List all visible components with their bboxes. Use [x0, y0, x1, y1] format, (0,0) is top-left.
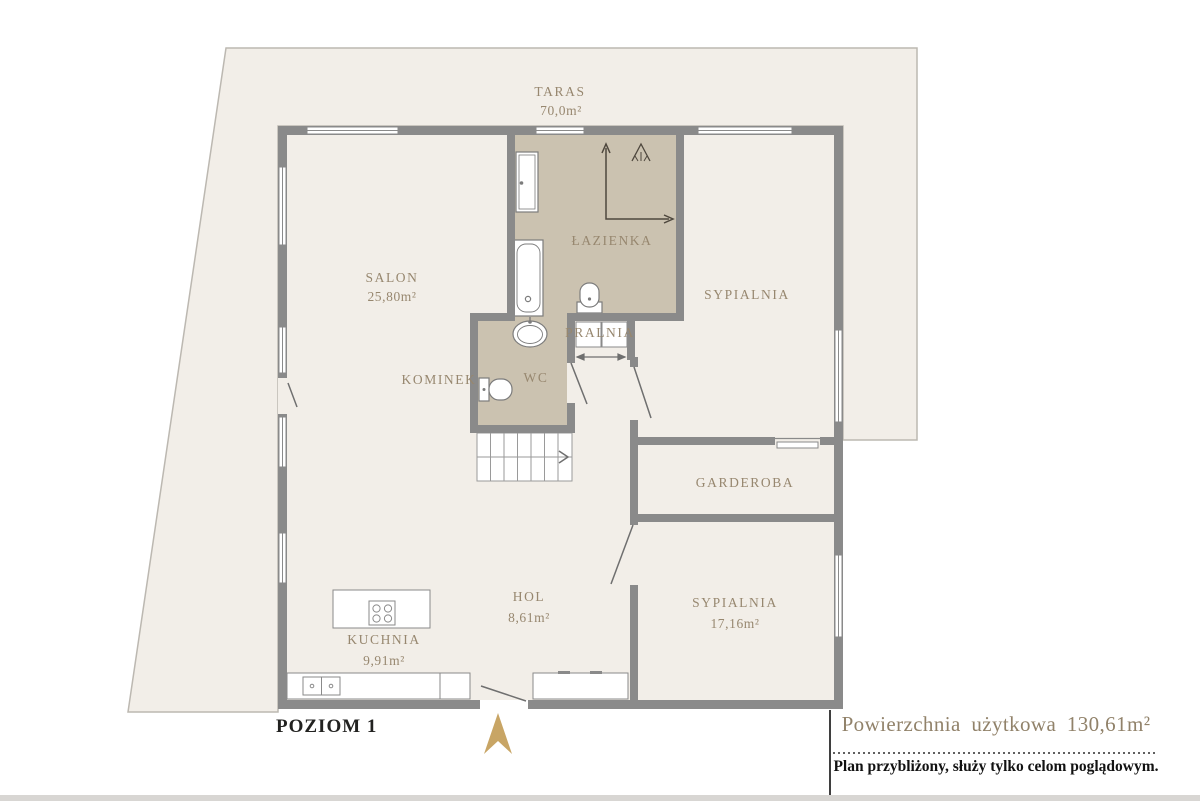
floor-plan-page: TARAS 70,0m² SALON 25,80m² ŁAZIENKA SYPI…	[0, 0, 1200, 801]
north-arrow-icon	[484, 713, 512, 754]
room-label-salon: SALON	[365, 270, 418, 286]
room-label-sypialnia-dolna: SYPIALNIA	[692, 595, 778, 611]
window	[307, 127, 398, 134]
room-area-kuchnia: 9,91m²	[363, 653, 405, 669]
room-area-sypialnia-dolna: 17,16m²	[710, 616, 759, 632]
room-label-kominek: KOMINEK	[402, 372, 477, 388]
room-label-wc: WC	[524, 370, 549, 386]
window	[279, 533, 286, 583]
room-label-pralnia: PRALNIA	[565, 325, 635, 341]
window	[835, 555, 842, 637]
total-area-label: Powierzchnia użytkowa 130,61m²	[833, 712, 1159, 737]
window	[279, 417, 286, 467]
bathroom-toilet	[577, 283, 602, 313]
room-label-taras: TARAS	[534, 84, 585, 100]
footer-divider-line	[829, 710, 831, 795]
wardrobe-sliding-door	[775, 437, 820, 448]
room-area-salon: 25,80m²	[367, 289, 416, 305]
terrace-door-opening	[278, 378, 287, 414]
room-area-taras: 70,0m²	[540, 103, 582, 119]
stairs	[477, 433, 572, 481]
window	[279, 327, 286, 373]
room-label-lazienka: ŁAZIENKA	[571, 233, 652, 249]
floor-plan-drawing	[0, 0, 1200, 801]
window	[536, 127, 584, 134]
window	[279, 167, 286, 245]
level-title: POZIOM 1	[276, 716, 377, 738]
room-label-hol: HOL	[513, 589, 546, 605]
room-label-garderoba: GARDEROBA	[696, 475, 794, 491]
room-label-kuchnia: KUCHNIA	[347, 632, 420, 648]
kitchen-counter	[287, 673, 470, 699]
plan-disclaimer: Plan przybliżony, służy tylko celom pogl…	[831, 758, 1161, 776]
hall-wardrobe	[533, 671, 628, 699]
wc-toilet	[479, 378, 512, 401]
page-bottom-strip	[0, 795, 1200, 801]
window	[698, 127, 792, 134]
room-label-sypialnia-gorna: SYPIALNIA	[704, 287, 790, 303]
bathroom-cabinet	[516, 152, 538, 212]
bathtub	[514, 240, 543, 316]
entry-door-opening	[480, 700, 528, 709]
window	[835, 330, 842, 422]
kitchen-island	[333, 590, 430, 628]
room-area-hol: 8,61m²	[508, 610, 550, 626]
